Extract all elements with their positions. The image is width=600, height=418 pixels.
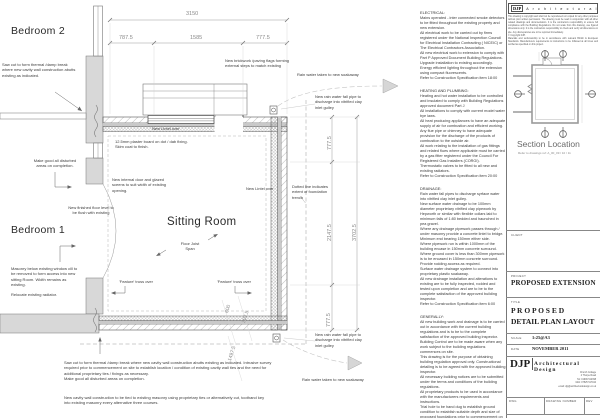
tb-footer-divider — [584, 397, 585, 414]
dim-total-top: 3150 — [186, 11, 198, 17]
note-steps: New brickwork /paving flags forming exte… — [225, 58, 293, 69]
note-truss-1: 'Feature' truss over — [119, 279, 163, 284]
note-saw-cut-short: Saw cut to form thermal /damp break wher… — [2, 62, 76, 78]
date-label: DATE — [511, 347, 519, 351]
footer-rev-label: REV — [586, 399, 593, 403]
note-foundation-line: Dotted line indicates extent of foundati… — [292, 184, 334, 200]
tb-divider — [506, 230, 600, 231]
scale-value: 1:25@A3 — [532, 335, 550, 340]
note-relocate-radiator: Relocate existing radiator. — [11, 292, 71, 297]
note-truss-2: 'Feature' truss over — [217, 279, 261, 284]
note-rain-pipe-top: New rain water fall pipe to discharge in… — [315, 94, 370, 110]
project-value: PROPOSED EXTENSION — [511, 279, 596, 287]
tb-divider — [506, 356, 600, 357]
dim-right-total: 3702.5 — [352, 224, 358, 241]
tb-divider — [506, 344, 600, 345]
note-finished-floor: New finished floor level to be flush wit… — [66, 205, 116, 216]
note-section-heading: GENERALLY: — [420, 314, 506, 319]
title-label: TITLE — [511, 300, 520, 304]
logo-initials: DJP — [510, 358, 533, 370]
note-section: HEATING AND PLUMBING:Heating and hot wat… — [420, 88, 506, 179]
note-saw-cut-long: Saw cut to form thermal /damp break wher… — [64, 360, 280, 382]
external-steps — [143, 84, 247, 115]
note-masonry-below: Masonry below existing window cill to be… — [11, 266, 81, 288]
note-internal-door: New internal door and glazed sceens to s… — [112, 177, 172, 193]
dim-seg1: 787.5 — [119, 35, 133, 41]
dim-seg2: 1585 — [190, 35, 202, 41]
firm-logo-name: A r c h i t e c t u r a l D e s i g n — [526, 7, 600, 11]
note-section-body: Heating and hot water installation to be… — [420, 94, 506, 179]
note-plasterboard: 12.5mm plaster board on dot / dab fixing… — [115, 139, 189, 150]
note-lintel-1: New Lintel over — [152, 126, 194, 131]
note-cavity-ties: New cavity wall construction to be tied … — [64, 395, 270, 406]
soakaway-arrows — [278, 79, 398, 370]
note-rain-pipe-bottom: New rain water fall pipe to discharge in… — [315, 332, 370, 348]
footer-drawing-number-label: DRAWING NUMBER — [546, 399, 577, 403]
note-floor-joist-span: Floor Joist Span — [173, 241, 207, 252]
tb-divider — [506, 271, 600, 272]
title-value-line2: DETAIL PLAN LAYOUT — [511, 317, 594, 326]
note-section-heading: HEATING AND PLUMBING: — [420, 88, 506, 93]
note-section: DRAINAGE:Rain water fall pipes to discha… — [420, 186, 506, 307]
note-section-heading: ELECTRICAL: — [420, 10, 506, 15]
firm-logo-initials: DJP — [511, 5, 523, 12]
section-location-minimap — [511, 48, 599, 140]
project-label: PROJECT — [511, 274, 526, 278]
section-location-ref: Refer to drawings ref: A_00_09 / 10 / 11 — [518, 151, 571, 155]
tb-divider — [506, 333, 600, 334]
scale-label: SCALE — [511, 336, 522, 340]
firm-address: Church Cottage 2 Thorpe Road Tel: 01909 … — [540, 372, 596, 389]
drawing-sheet: Bedroom 2 Bedroom 1 Sitting Room Saw cut… — [0, 0, 600, 418]
title-value-line1: P R O P O S E D — [511, 306, 564, 315]
note-soakaway-bottom: Rain water taken to new soakaway — [302, 377, 387, 382]
tb-footer-divider — [544, 397, 545, 414]
dim-right2: 2147.5 — [327, 224, 333, 241]
dim-seg3: 777.5 — [256, 35, 270, 41]
firm-logo-header: DJP A r c h i t e c t u r a l D e s i g … — [508, 3, 598, 14]
section-location-title: Section Location — [517, 139, 580, 149]
tb-divider — [506, 397, 600, 398]
copyright-disclaimer: This drawing is copyright and shall not … — [508, 16, 598, 48]
tb-divider — [506, 297, 600, 298]
note-make-good: Make good all disturbed areas on complet… — [29, 158, 81, 169]
dim-right3: 777.5 — [326, 313, 332, 327]
note-section: GENERALLY:All new building work and drai… — [420, 314, 506, 418]
room-label-sitting-room: Sitting Room — [167, 216, 236, 228]
note-soakaway-top: Rain water taken to new soakaway — [297, 72, 382, 77]
client-label: CLIENT — [511, 233, 523, 237]
footer-dwg-label: DWG — [509, 399, 517, 403]
note-lintel-2: New Lintel over — [246, 186, 288, 191]
note-section-body: All new building work and drainage is to… — [420, 320, 506, 418]
note-section-body: Rain water fall pipes to discharge syrfa… — [420, 192, 506, 307]
specification-notes: ELECTRICAL:Mains operated - inter connec… — [420, 10, 506, 418]
date-value: NOVEMBER 2011 — [532, 346, 568, 351]
note-section: ELECTRICAL:Mains operated - inter connec… — [420, 10, 506, 81]
room-label-bedroom1: Bedroom 1 — [11, 224, 65, 236]
tb-divider — [506, 414, 600, 415]
note-section-body: Mains operated - inter connected smoke d… — [420, 16, 506, 81]
title-block-header: DJP A r c h i t e c t u r a l D e s i g … — [508, 3, 598, 48]
room-label-bedroom2: Bedroom 2 — [11, 25, 65, 37]
note-section-heading: DRAINAGE: — [420, 186, 506, 191]
dim-right1: 777.5 — [327, 136, 333, 150]
